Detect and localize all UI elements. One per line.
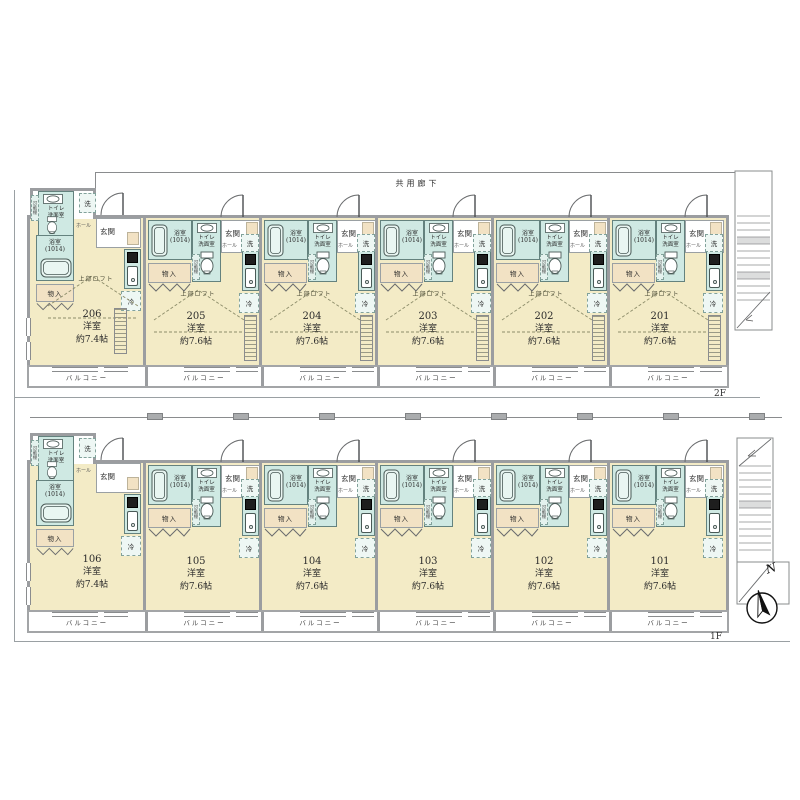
window: [104, 367, 128, 372]
window: [26, 342, 31, 360]
washer-space: 洗: [705, 479, 723, 497]
toilet-label: トイレ 洗面室: [425, 235, 452, 248]
folding-door-icon: [264, 528, 307, 537]
bathroom: 浴室 (1014): [148, 465, 192, 505]
toilet-icon: [45, 216, 59, 236]
folding-door-icon: [612, 528, 655, 537]
movable-shelf-label: 可動棚: [540, 254, 548, 280]
hall-label: ホール: [76, 467, 91, 474]
room-label: 203 洋室 約7.6帖: [378, 310, 478, 349]
balcony-label: バルコニー: [299, 372, 341, 382]
movable-shelf-label: 可動棚: [192, 254, 200, 280]
movable-shelf-label: 可動棚: [424, 254, 432, 280]
stove-icon: [127, 497, 138, 508]
unit: 浴室 (1014) トイレ 洗面室 可動棚 玄関 ホール 洗: [378, 218, 494, 368]
bathroom: 浴室 (1014): [496, 465, 540, 505]
stove-icon: [245, 499, 256, 510]
loft-label: 上部ロフト: [388, 289, 472, 298]
toilet-label: トイレ 洗面室: [541, 480, 568, 493]
hall-label: ホール: [454, 242, 469, 249]
entrance-door-arc-icon: [100, 437, 124, 461]
entrance-mat: [127, 477, 139, 490]
toilet-label: トイレ 洗面室: [193, 480, 220, 493]
window: [300, 612, 346, 617]
window: [584, 612, 606, 617]
unit-number: 106: [42, 553, 142, 566]
balcony-label: バルコニー: [531, 617, 573, 627]
stove-icon: [709, 499, 720, 510]
sink-icon: [661, 468, 681, 478]
bathroom: 浴室 (1014): [380, 465, 424, 505]
hall-label: ホール: [454, 487, 469, 494]
sink-icon: [313, 468, 333, 478]
window: [184, 367, 230, 372]
window: [468, 612, 490, 617]
toilet-label: トイレ 洗面室: [309, 235, 336, 248]
room-type: 洋室: [610, 568, 710, 581]
movable-shelf-label: 可動棚: [192, 499, 200, 525]
entrance-label: 玄関: [573, 473, 588, 484]
unit-number: 202: [494, 310, 594, 323]
bathtub-icon: [615, 469, 632, 502]
kitchen-sink-icon: [709, 513, 720, 533]
bathroom: 浴室 (1014): [612, 465, 656, 505]
movable-shelf-label: 可動棚: [308, 254, 316, 280]
hall-label: ホール: [222, 242, 237, 249]
unit-number: 102: [494, 555, 594, 568]
storage-closet: 物入: [148, 508, 191, 528]
unit-number: 103: [378, 555, 478, 568]
window: [104, 612, 128, 617]
corridor-label: 共用廊下: [96, 178, 739, 189]
room-type: 洋室: [42, 566, 142, 579]
room-label: 103 洋室 約7.6帖: [378, 555, 478, 594]
hall-label: ホール: [338, 242, 353, 249]
toilet-icon: [663, 251, 679, 277]
unit-number: 201: [610, 310, 710, 323]
hall-label: ホール: [686, 242, 701, 249]
unit: 浴室 (1014) トイレ 洗面室 可動棚 玄関 ホール 洗: [378, 463, 494, 613]
washer-space: 洗: [589, 479, 607, 497]
entrance-door-arc-icon: [336, 439, 360, 463]
room-type: 洋室: [42, 321, 142, 334]
room-size: 約7.6帖: [494, 336, 594, 349]
room-label: 201 洋室 約7.6帖: [610, 310, 710, 349]
washer-space: 洗: [79, 193, 96, 213]
room-label: 104 洋室 約7.6帖: [262, 555, 362, 594]
stove-icon: [477, 499, 488, 510]
washer-space: 洗: [473, 234, 491, 252]
window: [468, 367, 490, 372]
kitchen-sink-icon: [127, 511, 138, 531]
unit-row: 浴室 (1014) トイレ 洗面室 可動棚 玄関 ホール 洗: [27, 215, 729, 371]
room-type: 洋室: [494, 568, 594, 581]
balcony-label: バルコニー: [531, 372, 573, 382]
storage-closet: 物入: [36, 529, 74, 547]
window: [352, 367, 374, 372]
kitchenette: [706, 496, 723, 536]
window: [584, 367, 606, 372]
kitchen-sink-icon: [245, 513, 256, 533]
window: [184, 612, 230, 617]
kitchenette: [590, 496, 607, 536]
window: [300, 367, 346, 372]
pillar: [147, 413, 163, 420]
folding-door-icon: [148, 528, 191, 537]
hall-label: ホール: [686, 487, 701, 494]
entrance-door-arc-icon: [452, 439, 476, 463]
movable-shelf-label: 可動棚: [656, 499, 664, 525]
room-size: 約7.6帖: [610, 581, 710, 594]
washer-space: 洗: [241, 234, 259, 252]
window: [416, 367, 462, 372]
room-size: 約7.6帖: [146, 336, 246, 349]
toilet-icon: [431, 496, 447, 522]
kitchenette: [124, 494, 141, 534]
washer-space: 洗: [705, 234, 723, 252]
bath-label: 浴室 (1014): [400, 475, 424, 489]
storage-closet: 物入: [264, 508, 307, 528]
room-type: 洋室: [378, 568, 478, 581]
floor-plan-canvas: 共用廊下 浴室 (1014): [0, 0, 800, 800]
hall-label: ホール: [338, 487, 353, 494]
kitchenette: [242, 496, 259, 536]
room-label: 202 洋室 約7.6帖: [494, 310, 594, 349]
toilet-label: トイレ 洗面室: [193, 235, 220, 248]
room-size: 約7.4帖: [42, 579, 142, 592]
balcony-label: バルコニー: [183, 617, 225, 627]
site-line: [14, 641, 790, 642]
entrance-door-arc-icon: [684, 439, 708, 463]
pillar: [319, 413, 335, 420]
sink-icon: [43, 194, 63, 204]
balcony-label: バルコニー: [647, 372, 689, 382]
hall-label: ホール: [222, 487, 237, 494]
toilet-label: トイレ 洗面室: [657, 480, 684, 493]
bathroom: 浴室 (1014): [36, 480, 74, 526]
window: [700, 367, 722, 372]
room-size: 約7.6帖: [378, 336, 478, 349]
unit: 浴室 (1014) トイレ 洗面室 可動棚 玄関 ホール 洗: [30, 218, 146, 368]
entrance-door-arc-icon: [220, 439, 244, 463]
entrance-label: 玄関: [225, 473, 240, 484]
bath-label: 浴室 (1014): [516, 475, 540, 489]
window: [532, 367, 578, 372]
balcony-label: バルコニー: [66, 372, 108, 382]
unit-number: 203: [378, 310, 478, 323]
bath-label: 浴室 (1014): [632, 475, 656, 489]
window: [26, 318, 31, 336]
window: [26, 563, 31, 581]
entrance-label: 玄関: [689, 473, 704, 484]
room-size: 約7.4帖: [42, 334, 142, 347]
unit-number: 205: [146, 310, 246, 323]
toilet-icon: [315, 251, 331, 277]
storage-closet: 物入: [380, 508, 423, 528]
washer-space: 洗: [357, 479, 375, 497]
unit: 浴室 (1014) トイレ 洗面室 可動棚 玄関 ホール 洗: [30, 463, 146, 613]
kitchen-sink-icon: [593, 513, 604, 533]
movable-shelf-label: 可動棚: [540, 499, 548, 525]
sink-icon: [197, 468, 217, 478]
pillar: [577, 413, 593, 420]
balcony-row: バルコニー バルコニー バルコニー バルコニー バルコニー バルコニー: [27, 610, 729, 633]
room-type: 洋室: [610, 323, 710, 336]
window: [352, 612, 374, 617]
room-type: 洋室: [262, 323, 362, 336]
unit-number: 104: [262, 555, 362, 568]
entrance-door-arc-icon: [568, 194, 592, 218]
unit: 浴室 (1014) トイレ 洗面室 可動棚 玄関 ホール 洗: [610, 463, 726, 613]
bathtub-icon: [499, 469, 516, 502]
entrance-door-arc-icon: [220, 194, 244, 218]
kitchenette: [474, 496, 491, 536]
room-label: 205 洋室 約7.6帖: [146, 310, 246, 349]
washer-space: 洗: [357, 234, 375, 252]
unit: 浴室 (1014) トイレ 洗面室 可動棚 玄関 ホール 洗: [494, 463, 610, 613]
unit-number: 204: [262, 310, 362, 323]
toilet-label: トイレ 洗面室: [657, 235, 684, 248]
hall-label: ホール: [76, 222, 91, 229]
window: [52, 367, 98, 372]
balcony-label: バルコニー: [299, 617, 341, 627]
room-type: 洋室: [146, 568, 246, 581]
unit: 浴室 (1014) トイレ 洗面室 可動棚 玄関 ホール 洗: [262, 463, 378, 613]
sink-icon: [545, 468, 565, 478]
unit-row: 浴室 (1014) トイレ 洗面室 可動棚 玄関 ホール 洗: [27, 460, 729, 616]
washer-space: 洗: [473, 479, 491, 497]
bathtub-icon: [151, 469, 168, 502]
toilet-icon: [547, 251, 563, 277]
room-type: 洋室: [262, 568, 362, 581]
room-size: 約7.6帖: [262, 336, 362, 349]
entrance-door-arc-icon: [684, 194, 708, 218]
bathtub-icon: [383, 469, 400, 502]
unit-number: 101: [610, 555, 710, 568]
balcony-row: バルコニー バルコニー バルコニー バルコニー バルコニー バルコニー: [27, 365, 729, 388]
movable-shelf-label: 可動棚: [308, 499, 316, 525]
window: [416, 612, 462, 617]
toilet-label: トイレ 洗面室: [309, 480, 336, 493]
window: [52, 612, 98, 617]
folding-door-icon: [380, 528, 423, 537]
pillar: [233, 413, 249, 420]
sink-icon: [43, 439, 63, 449]
folding-door-icon: [496, 528, 539, 537]
entrance-label: 玄関: [457, 473, 472, 484]
site-line: [14, 397, 760, 398]
pillar: [405, 413, 421, 420]
sink-icon: [545, 223, 565, 233]
movable-shelf-label: 可動棚: [31, 440, 39, 466]
storage-closet: 物入: [496, 508, 539, 528]
site-line: [14, 190, 15, 642]
loft-label: 上部ロフト: [156, 289, 240, 298]
pillar: [491, 413, 507, 420]
floor-1f: 浴室 (1014) トイレ 洗面室 可動棚 玄関 ホール 洗: [30, 418, 726, 633]
room-label: 206 洋室 約7.4帖: [42, 308, 142, 347]
unit: 浴室 (1014) トイレ 洗面室 可動棚 玄関 ホール 洗: [146, 463, 262, 613]
washer-space: 洗: [79, 438, 96, 458]
stove-icon: [593, 499, 604, 510]
kitchen-sink-icon: [477, 513, 488, 533]
room-size: 約7.6帖: [494, 581, 594, 594]
window: [236, 367, 258, 372]
pillar: [663, 413, 679, 420]
entrance-door-arc-icon: [452, 194, 476, 218]
unit: 浴室 (1014) トイレ 洗面室 可動棚 玄関 ホール 洗: [494, 218, 610, 368]
window: [26, 587, 31, 605]
room-size: 約7.6帖: [262, 581, 362, 594]
unit-number: 105: [146, 555, 246, 568]
loft-label: 上部ロフト: [504, 289, 588, 298]
unit-number: 206: [42, 308, 142, 321]
loft-label: 上部ロフト: [54, 274, 138, 283]
sink-icon: [197, 223, 217, 233]
toilet-washroom: トイレ 洗面室: [38, 436, 74, 481]
room-size: 約7.6帖: [610, 336, 710, 349]
common-corridor: 共用廊下: [95, 172, 740, 215]
toilet-icon: [315, 496, 331, 522]
toilet-icon: [199, 251, 215, 277]
pillar: [749, 413, 765, 420]
room-label: 204 洋室 約7.6帖: [262, 310, 362, 349]
bath-label: 浴室 (1014): [168, 475, 192, 489]
staircase-2f: [734, 170, 774, 332]
kitchen-sink-icon: [361, 513, 372, 533]
floor-2f: 共用廊下 浴室 (1014): [30, 172, 726, 388]
balcony-label: バルコニー: [66, 617, 108, 627]
window: [700, 612, 722, 617]
toilet-icon: [45, 461, 59, 481]
balcony-label: バルコニー: [415, 372, 457, 382]
stove-icon: [361, 499, 372, 510]
room-size: 約7.6帖: [378, 581, 478, 594]
window: [532, 612, 578, 617]
window: [648, 612, 694, 617]
balcony-label: バルコニー: [183, 372, 225, 382]
window: [236, 612, 258, 617]
unit: 浴室 (1014) トイレ 洗面室 可動棚 玄関 ホール 洗: [610, 218, 726, 368]
movable-shelf-label: 可動棚: [656, 254, 664, 280]
room-label: 106 洋室 約7.4帖: [42, 553, 142, 592]
sink-icon: [661, 223, 681, 233]
kitchenette: [358, 496, 375, 536]
balcony-label: バルコニー: [647, 617, 689, 627]
room-label: 102 洋室 約7.6帖: [494, 555, 594, 594]
storage-closet: 物入: [612, 508, 655, 528]
entrance: 玄関: [96, 463, 141, 493]
bath-label: 浴室 (1014): [284, 475, 308, 489]
room-label: 105 洋室 約7.6帖: [146, 555, 246, 594]
washer-space: 洗: [589, 234, 607, 252]
bath-label: 浴室 (1014): [37, 484, 73, 498]
sink-icon: [313, 223, 333, 233]
sink-icon: [429, 223, 449, 233]
sink-icon: [429, 468, 449, 478]
toilet-icon: [547, 496, 563, 522]
room-type: 洋室: [146, 323, 246, 336]
balcony-label: バルコニー: [415, 617, 457, 627]
entrance-door-arc-icon: [100, 192, 124, 216]
unit: 浴室 (1014) トイレ 洗面室 可動棚 玄関 ホール 洗: [262, 218, 378, 368]
bathtub-icon: [40, 503, 72, 523]
bathroom: 浴室 (1014): [264, 465, 308, 505]
room-type: 洋室: [494, 323, 594, 336]
toilet-icon: [199, 496, 215, 522]
toilet-label: トイレ 洗面室: [541, 235, 568, 248]
compass-north-icon: N: [738, 560, 786, 636]
loft-label: 上部ロフト: [620, 289, 704, 298]
room-type: 洋室: [378, 323, 478, 336]
toilet-icon: [663, 496, 679, 522]
entrance-label: 玄関: [100, 471, 115, 482]
loft-label: 上部ロフト: [272, 289, 356, 298]
unit: 浴室 (1014) トイレ 洗面室 可動棚 玄関 ホール 洗: [146, 218, 262, 368]
entrance-door-arc-icon: [568, 439, 592, 463]
washer-space: 洗: [241, 479, 259, 497]
toilet-icon: [431, 251, 447, 277]
entrance-label: 玄関: [341, 473, 356, 484]
hall-label: ホール: [570, 242, 585, 249]
bathtub-icon: [267, 469, 284, 502]
compass-n-label: N: [763, 560, 779, 577]
movable-shelf-label: 可動棚: [31, 195, 39, 221]
entrance-door-arc-icon: [336, 194, 360, 218]
room-label: 101 洋室 約7.6帖: [610, 555, 710, 594]
hall-label: ホール: [570, 487, 585, 494]
window: [648, 367, 694, 372]
toilet-label: トイレ 洗面室: [425, 480, 452, 493]
room-size: 約7.6帖: [146, 581, 246, 594]
toilet-washroom: トイレ 洗面室: [38, 191, 74, 236]
movable-shelf-label: 可動棚: [424, 499, 432, 525]
